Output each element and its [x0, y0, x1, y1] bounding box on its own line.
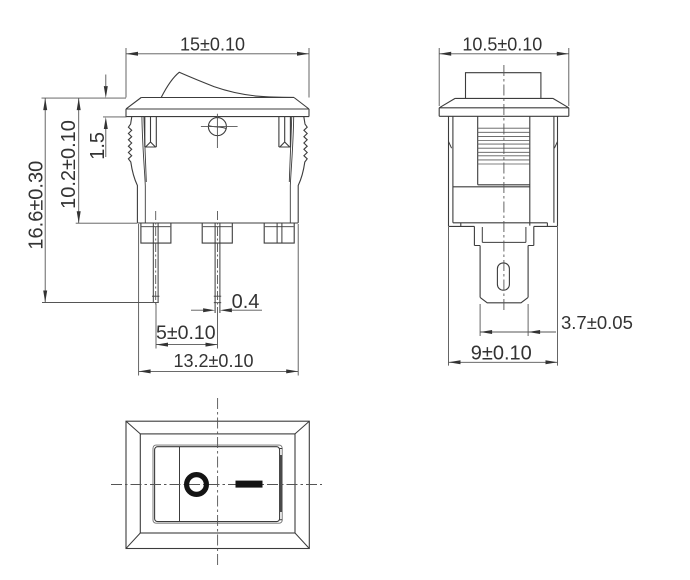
svg-text:3.7±0.05: 3.7±0.05: [561, 312, 633, 333]
svg-text:10.5±0.10: 10.5±0.10: [462, 34, 542, 54]
svg-text:5±0.10: 5±0.10: [156, 322, 216, 344]
svg-text:15±0.10: 15±0.10: [180, 34, 245, 54]
svg-text:16.6±0.30: 16.6±0.30: [26, 161, 48, 250]
svg-text:13.2±0.10: 13.2±0.10: [174, 351, 254, 371]
svg-text:9±0.10: 9±0.10: [471, 342, 532, 364]
svg-text:0.4: 0.4: [232, 291, 260, 313]
svg-text:1.5: 1.5: [87, 132, 109, 160]
svg-text:10.2±0.10: 10.2±0.10: [58, 120, 80, 209]
